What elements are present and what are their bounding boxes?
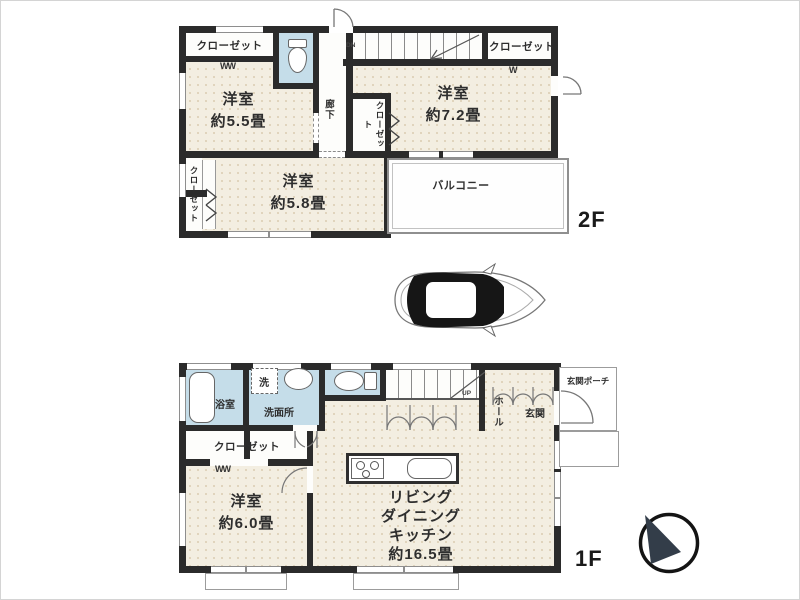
door-opening xyxy=(313,113,319,143)
window xyxy=(409,151,439,158)
window xyxy=(554,472,561,526)
kitchen-sink-icon xyxy=(407,458,452,479)
door-arc-2f-right xyxy=(563,77,581,94)
floorplan-image: バルコニー xyxy=(0,0,800,600)
door-opening xyxy=(551,76,558,96)
floor-2f-label: 2F xyxy=(578,207,606,233)
door-opening xyxy=(319,151,345,158)
porch-label: 玄関ポーチ xyxy=(561,375,615,387)
2f-balcony xyxy=(387,158,569,234)
room-1f-bedroom60-label: 洋室 約6.0畳 xyxy=(184,491,309,535)
closet-1f-label: クローゼット xyxy=(187,439,307,454)
room-2f-bedroom72-label: 洋室 約7.2畳 xyxy=(391,83,516,127)
ldk-area: 約16.5畳 xyxy=(388,546,453,563)
window-mullion xyxy=(268,231,270,238)
compass-icon xyxy=(641,515,698,572)
car-top-view xyxy=(395,264,545,336)
room-2f-bedroom55-label: 洋室 約5.5畳 xyxy=(176,89,301,133)
window xyxy=(331,363,371,370)
ldk-line3: キッチン xyxy=(389,527,453,544)
wall-segment xyxy=(325,395,386,401)
closet-right-label: クローゼット xyxy=(489,39,551,54)
laundry-label: 洗 xyxy=(253,374,275,389)
room-name: 洋室 xyxy=(222,91,254,108)
window xyxy=(216,26,263,33)
window xyxy=(443,151,473,158)
floor-1f-label: 1F xyxy=(575,546,603,572)
hall-label: ホール xyxy=(490,393,504,431)
closet-left-label: クローゼット xyxy=(188,161,200,227)
room-2f-bedroom58-label: 洋室 約5.8畳 xyxy=(236,171,361,215)
window xyxy=(179,164,186,197)
terrace-step xyxy=(205,573,287,590)
wall-segment xyxy=(243,370,249,431)
room-area: 約5.5畳 xyxy=(211,113,267,130)
toilet-bowl-icon xyxy=(334,371,364,391)
window-mullion xyxy=(245,566,247,573)
porch-step xyxy=(559,431,619,467)
terrace-step xyxy=(353,573,459,590)
wall-segment xyxy=(482,33,488,59)
window-mullion xyxy=(403,566,405,573)
window xyxy=(187,363,231,370)
wall-segment xyxy=(479,370,485,431)
wall-segment xyxy=(343,59,553,66)
wall-segment xyxy=(273,33,279,89)
balcony-inner-line xyxy=(392,163,564,229)
room-name: 洋室 xyxy=(230,493,262,510)
balcony-label: バルコニー xyxy=(401,177,521,193)
toilet-tank-icon xyxy=(364,372,377,390)
closet-mid-label: クローゼット xyxy=(362,101,386,149)
window xyxy=(393,363,471,370)
door-arc-2f-top xyxy=(334,9,353,27)
window-mullion xyxy=(554,497,561,499)
wall-segment xyxy=(380,370,386,401)
ldk-line2: ダイニング xyxy=(381,508,461,525)
stair-edge-line xyxy=(386,398,479,400)
room-1f-ldk-label: リビング ダイニング キッチン 約16.5畳 xyxy=(356,488,486,564)
door-opening xyxy=(307,466,313,493)
room-area: 約7.2畳 xyxy=(426,107,482,124)
bath-label: 浴室 xyxy=(207,396,243,411)
stairs-dn-label: DN xyxy=(346,42,355,49)
hallway-label: 廊下 xyxy=(321,89,335,129)
stairs-up-label: UP xyxy=(462,390,471,397)
hanger-mark: WW xyxy=(215,464,230,474)
sink-icon xyxy=(284,368,313,390)
closet-top-label: クローゼット xyxy=(187,38,272,53)
room-area: 約6.0畳 xyxy=(219,515,275,532)
room-area: 約5.8畳 xyxy=(271,195,327,212)
washroom-label: 洗面所 xyxy=(253,404,305,419)
stove-burner xyxy=(370,461,379,470)
window xyxy=(329,26,353,33)
stove-burner xyxy=(356,461,365,470)
window xyxy=(357,566,453,573)
hanger-mark: W xyxy=(509,65,517,75)
ldk-line1: リビング xyxy=(389,489,453,506)
room-name: 洋室 xyxy=(282,173,314,190)
entrance-label: 玄関 xyxy=(517,405,553,420)
hanger-mark: WW xyxy=(220,61,235,71)
stove-burner xyxy=(362,470,370,478)
window xyxy=(179,377,186,421)
door-opening xyxy=(293,425,317,431)
room-name: 洋室 xyxy=(437,85,469,102)
2f-staircase xyxy=(353,33,482,59)
